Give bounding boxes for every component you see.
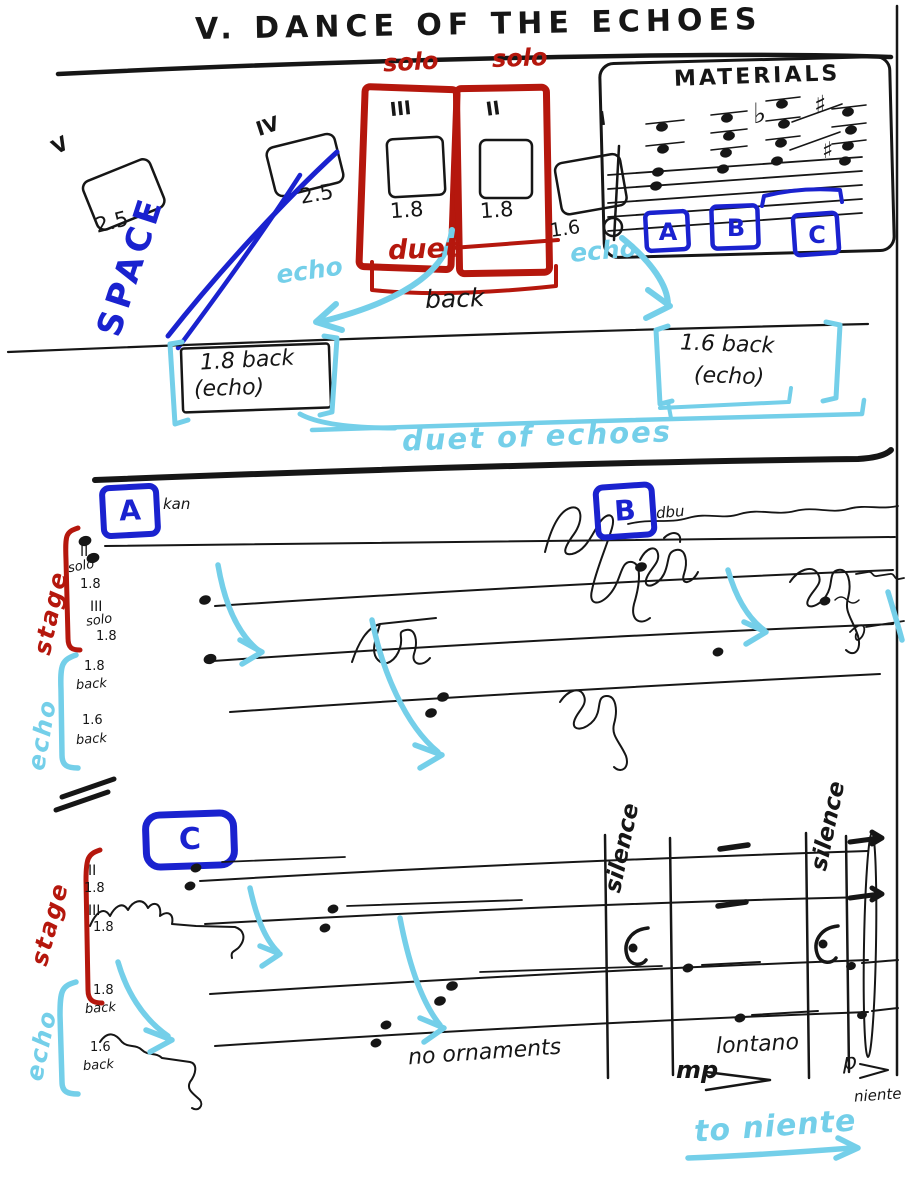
echo-label-right: echo xyxy=(569,235,638,266)
station-ii-value: 1.8 xyxy=(479,199,514,222)
score2-notes xyxy=(183,862,868,1049)
score2-row3-b: back xyxy=(83,1058,115,1073)
marker-b-note: dbu xyxy=(655,504,685,521)
flat-icon: ♭ xyxy=(753,100,766,128)
score2-silence-marks xyxy=(626,832,898,1015)
final-flourish xyxy=(862,833,878,1057)
treble-clef-icon xyxy=(604,146,622,240)
score1-notes xyxy=(77,534,831,719)
score1-row3-b: back xyxy=(76,732,108,747)
score1-ornaments xyxy=(352,507,904,770)
score2-row1-a: III xyxy=(88,904,100,918)
niente-label: niente xyxy=(854,1086,902,1104)
station-ii-numeral: II xyxy=(485,99,502,120)
score2-row3-a: 1.6 xyxy=(90,1041,111,1054)
echo-box-right-line2: (echo) xyxy=(694,365,765,389)
station-iv-value: 2.5 xyxy=(298,181,335,207)
echo-box-right-line1: 1.6 back xyxy=(680,332,775,357)
space-axis-lines xyxy=(168,152,337,348)
sketch-page: V. DANCE OF THE ECHOES SPACE V 2.5 IV 2.… xyxy=(0,0,905,1200)
page-frame-lines xyxy=(58,6,897,1075)
score1-row2-b: back xyxy=(76,677,108,692)
score2-row0-b: 1.8 xyxy=(84,882,105,895)
marker-c: C xyxy=(145,812,235,867)
station-iii-value: 1.8 xyxy=(389,199,424,222)
marker-a: A xyxy=(102,486,158,537)
score2-row2-a: 1.8 xyxy=(93,984,114,997)
materials-label-b: B xyxy=(714,208,758,248)
score1-staff-lines xyxy=(105,506,898,712)
score1-row2-a: 1.8 xyxy=(84,660,105,673)
sketch-strokes xyxy=(0,0,905,1200)
solo-label-1: solo xyxy=(382,49,439,76)
dynamic-mp: mp xyxy=(676,1058,718,1082)
section-break-slashes xyxy=(56,779,114,810)
lontano-label: lontano xyxy=(715,1032,799,1058)
solo-label-2: solo xyxy=(492,45,548,71)
materials-label-c: C xyxy=(796,216,838,254)
score1-row1-b: solo xyxy=(85,612,113,629)
materials-label-a: A xyxy=(648,214,688,250)
echo-box-left-line1: 1.8 back xyxy=(199,348,294,375)
after-silence-marks xyxy=(702,960,898,1015)
score1-row1-c: 1.8 xyxy=(96,630,117,643)
sharp-high-icon: ♯ xyxy=(814,92,826,117)
dynamics-hairpins xyxy=(706,1064,888,1090)
echo-box-left-line2: (echo) xyxy=(194,377,265,401)
score2-row2-b: back xyxy=(85,1001,117,1016)
sharp-low-icon: ♯ xyxy=(822,140,833,163)
score2-row0-a: II xyxy=(88,864,96,878)
marker-a-note: kan xyxy=(163,497,190,512)
back-line-label: back xyxy=(425,285,485,312)
materials-title: MATERIALS xyxy=(674,63,841,91)
score2-staff-lines xyxy=(200,851,868,1046)
score2-row1-b: 1.8 xyxy=(93,921,114,934)
score1-echo-arrows xyxy=(218,565,902,768)
duet-label: duet xyxy=(388,235,459,264)
station-iii-numeral: III xyxy=(389,99,412,120)
marker-b: B xyxy=(595,484,654,538)
score1-row3-a: 1.6 xyxy=(82,714,103,727)
score1-row0-c: 1.8 xyxy=(80,578,101,591)
dynamic-p: p xyxy=(843,1052,857,1074)
